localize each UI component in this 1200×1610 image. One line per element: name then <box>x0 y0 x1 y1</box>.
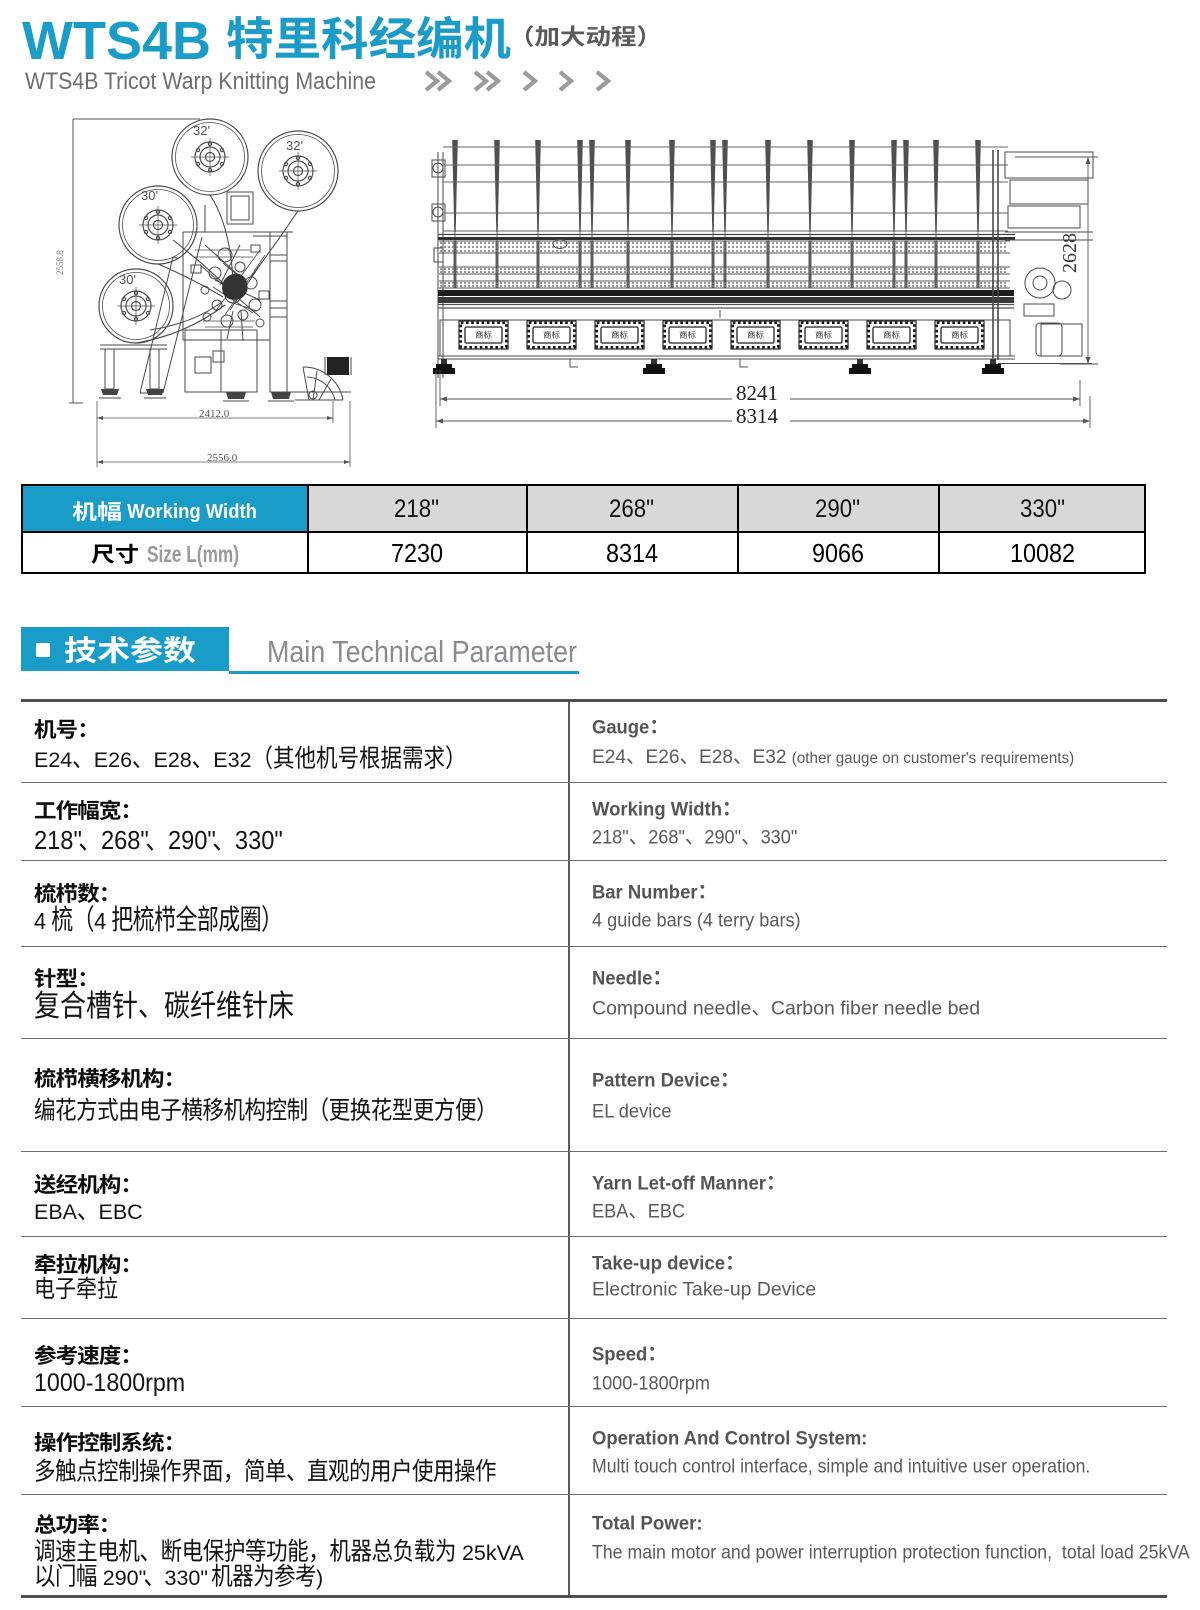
svg-text:Working Width: Working Width <box>122 501 257 523</box>
svg-text:8314: 8314 <box>606 538 658 568</box>
svg-text:8314: 8314 <box>736 404 779 428</box>
svg-text:268": 268" <box>609 495 654 523</box>
svg-text:10082: 10082 <box>1010 538 1075 568</box>
svg-text:Total Power:: Total Power: <box>592 1512 703 1534</box>
svg-text:4: 4 <box>94 907 112 934</box>
svg-text:4: 4 <box>34 907 52 934</box>
svg-text:WTS4B: WTS4B <box>22 11 226 71</box>
svg-text:EBC: EBC <box>99 1200 143 1224</box>
svg-text:EBA: EBA <box>34 1200 78 1224</box>
svg-text:1000-1800rpm: 1000-1800rpm <box>592 1372 710 1394</box>
svg-text:E32: E32 <box>753 746 792 768</box>
svg-text:330": 330" <box>761 826 798 848</box>
svg-text:Size L(mm): Size L(mm) <box>147 541 239 567</box>
svg-text:8241: 8241 <box>736 381 778 405</box>
svg-text:Gauge: Gauge <box>592 716 649 738</box>
svg-text:290": 290" <box>704 826 741 848</box>
svg-text:7230: 7230 <box>391 538 443 568</box>
svg-text:330": 330" <box>235 827 283 855</box>
svg-text:290": 290" <box>168 827 216 855</box>
svg-text:(other gauge on customer's req: (other gauge on customer's requirements) <box>792 750 1074 767</box>
svg-text:): ) <box>316 1566 323 1590</box>
svg-text:EBC: EBC <box>648 1200 685 1222</box>
svg-text:290": 290" <box>97 1566 146 1590</box>
svg-text:Operation And Control System:: Operation And Control System: <box>592 1427 867 1449</box>
svg-text:4 guide bars (4 terry bars): 4 guide bars (4 terry bars) <box>592 909 801 931</box>
svg-text:218": 218" <box>592 826 629 848</box>
svg-text:330": 330" <box>1020 495 1065 523</box>
svg-text:Pattern Device: Pattern Device <box>592 1069 720 1091</box>
svg-text:Carbon fiber needle bed: Carbon fiber needle bed <box>771 997 980 1019</box>
svg-text:2558.8: 2558.8 <box>55 250 65 275</box>
svg-text:2628: 2628 <box>1059 233 1081 273</box>
svg-text:Bar Number: Bar Number <box>592 881 698 903</box>
svg-text:Main Technical Parameter: Main Technical Parameter <box>267 634 577 669</box>
svg-text:E24: E24 <box>34 747 72 771</box>
svg-text:EBA: EBA <box>592 1200 628 1222</box>
svg-text:E24: E24 <box>592 746 626 768</box>
svg-text:218": 218" <box>34 827 82 855</box>
svg-text:E26: E26 <box>94 747 132 771</box>
svg-text:290": 290" <box>815 495 860 523</box>
svg-text:330": 330" <box>165 1566 214 1590</box>
svg-text:E28: E28 <box>154 747 192 771</box>
svg-text:268": 268" <box>648 826 685 848</box>
svg-text:Yarn Let-off Manner: Yarn Let-off Manner <box>592 1172 766 1194</box>
svg-text:Electronic Take-up Device: Electronic Take-up Device <box>592 1278 816 1300</box>
svg-text:30': 30' <box>119 272 136 287</box>
svg-text:Working Width: Working Width <box>592 798 722 820</box>
svg-text:268": 268" <box>101 827 149 855</box>
svg-text:9066: 9066 <box>812 538 864 568</box>
svg-text:32': 32' <box>286 138 303 153</box>
svg-text:1000-1800rpm: 1000-1800rpm <box>34 1369 185 1397</box>
svg-text:E26: E26 <box>646 746 680 768</box>
svg-text:2412.0: 2412.0 <box>199 408 230 420</box>
svg-text:32': 32' <box>193 123 210 138</box>
svg-text:2556.0: 2556.0 <box>207 452 238 464</box>
svg-text:Needle: Needle <box>592 967 653 989</box>
svg-text:30': 30' <box>141 188 158 203</box>
svg-text:Speed: Speed <box>592 1343 647 1365</box>
svg-text:EL device: EL device <box>592 1100 672 1122</box>
svg-text:Compound needle: Compound needle <box>592 997 751 1019</box>
svg-text:25kVA: 25kVA <box>456 1541 524 1565</box>
svg-text:218": 218" <box>394 495 439 523</box>
svg-text:E28: E28 <box>699 746 733 768</box>
svg-text:E32: E32 <box>213 747 251 771</box>
svg-text:The main motor and power inter: The main motor and power interruption pr… <box>592 1541 1190 1563</box>
svg-text:Multi touch control interface,: Multi touch control interface, simple an… <box>592 1455 1090 1477</box>
svg-text:WTS4B Tricot Warp Knitting Mac: WTS4B Tricot Warp Knitting Machine <box>25 68 376 95</box>
